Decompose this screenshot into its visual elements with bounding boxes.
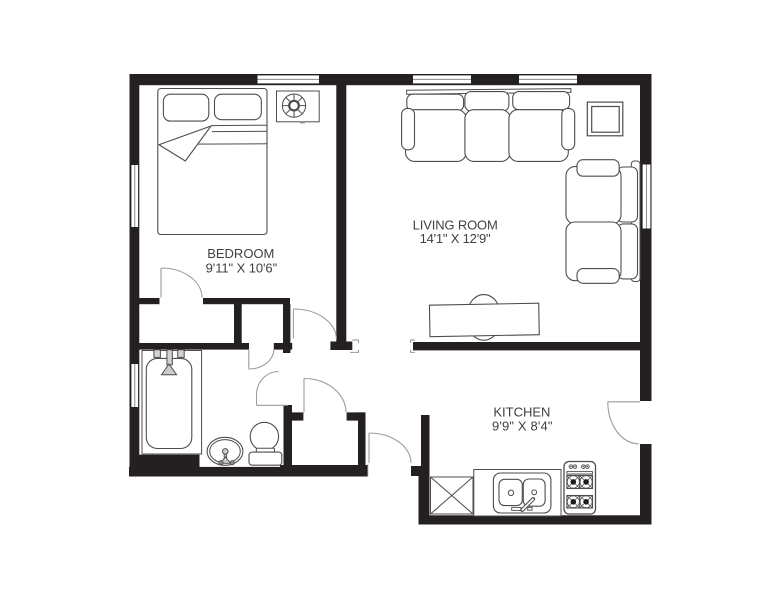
svg-text:9'11" X 10'6": 9'11" X 10'6" [206, 260, 278, 275]
svg-text:LIVING ROOM: LIVING ROOM [413, 217, 498, 232]
svg-text:14'1" X 12'9": 14'1" X 12'9" [420, 231, 491, 246]
svg-text:BEDROOM: BEDROOM [207, 246, 274, 261]
svg-text:KITCHEN: KITCHEN [493, 405, 550, 420]
svg-text:9'9" X 8'4": 9'9" X 8'4" [492, 418, 553, 433]
